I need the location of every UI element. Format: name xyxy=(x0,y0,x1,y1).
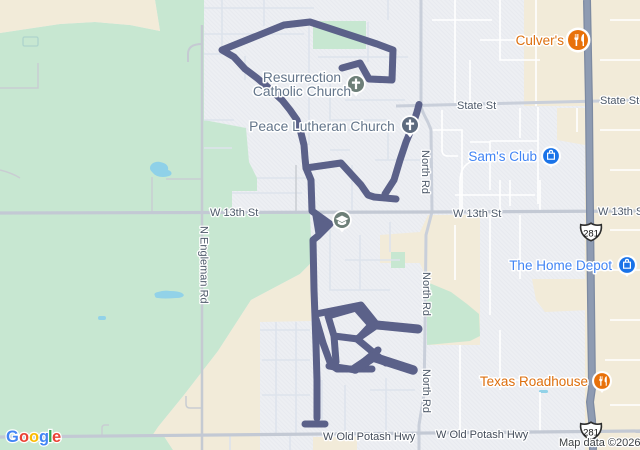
svg-text:Catholic Church: Catholic Church xyxy=(253,84,351,99)
svg-text:Culver's: Culver's xyxy=(516,33,565,48)
svg-text:Peace Lutheran Church: Peace Lutheran Church xyxy=(249,119,395,134)
svg-text:State St: State St xyxy=(600,95,639,107)
svg-text:State St: State St xyxy=(457,100,496,112)
svg-text:W 13th St: W 13th St xyxy=(453,208,501,220)
svg-text:North Rd: North Rd xyxy=(419,150,431,194)
svg-text:e: e xyxy=(52,428,61,446)
svg-text:o: o xyxy=(29,428,39,446)
svg-text:G: G xyxy=(6,428,19,446)
svg-text:North Rd: North Rd xyxy=(420,369,432,413)
svg-text:W Old Potash Hwy: W Old Potash Hwy xyxy=(436,429,529,441)
svg-text:Resurrection: Resurrection xyxy=(263,70,341,85)
svg-text:W 13th St: W 13th St xyxy=(210,207,258,219)
svg-text:W Old Potash Hwy: W Old Potash Hwy xyxy=(323,431,416,443)
svg-text:The Home Depot: The Home Depot xyxy=(509,258,612,273)
svg-text:Sam's Club: Sam's Club xyxy=(468,149,537,164)
svg-text:W 13th St: W 13th St xyxy=(598,206,640,218)
svg-text:Texas Roadhouse: Texas Roadhouse xyxy=(480,374,588,389)
svg-text:North Rd: North Rd xyxy=(420,272,432,316)
svg-text:Map data ©2026: Map data ©2026 xyxy=(559,437,640,449)
svg-text:N Engleman Rd: N Engleman Rd xyxy=(198,226,210,304)
svg-text:o: o xyxy=(19,428,29,446)
svg-text:281: 281 xyxy=(583,229,599,240)
